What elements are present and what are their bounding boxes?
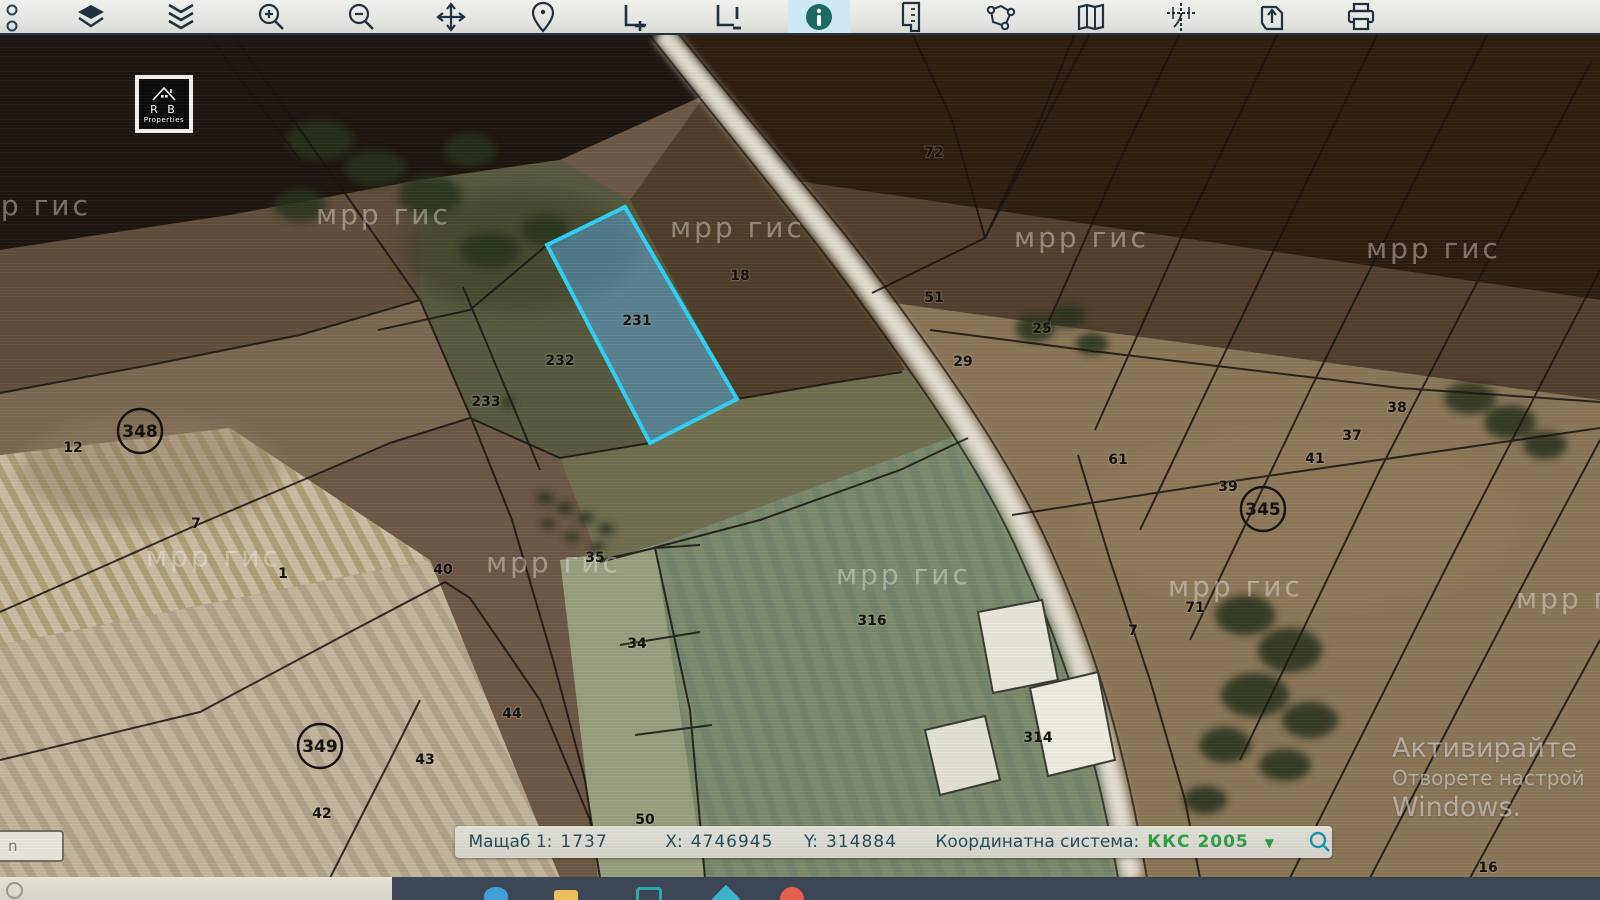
scale-value: 1737 <box>560 832 607 852</box>
activation-line1: Активирайте <box>1392 732 1585 766</box>
parcel-number-label: 61 <box>1108 452 1127 468</box>
parcel-number-label: 7 <box>1128 623 1138 639</box>
map-watermark: мрр гис <box>316 198 451 231</box>
coordinate-search-button[interactable] <box>1308 830 1332 854</box>
crs-value[interactable]: ККС 2005 <box>1147 832 1249 852</box>
parcel-number-label: 7 <box>191 516 201 532</box>
parcel-number-label: 71 <box>1185 600 1204 616</box>
activation-line2: Отворете настрой <box>1392 766 1585 791</box>
scale-readout: Мащаб 1: 1737 <box>468 832 607 852</box>
parcel-number-label: 51 <box>924 290 943 306</box>
x-coordinate-readout: X: 4746945 <box>665 832 773 852</box>
parcel-number-label: 42 <box>312 806 331 822</box>
parcel-number-label: 40 <box>433 562 453 578</box>
parcel-number-label: 316 <box>857 613 886 629</box>
y-value: 314884 <box>826 832 897 852</box>
parcel-number-label: 41 <box>1305 451 1324 467</box>
polygon-nodes-icon[interactable] <box>970 0 1032 33</box>
coordinates-icon[interactable] <box>1150 0 1212 33</box>
parcel-number-label: 35 <box>585 550 604 566</box>
location-pin-icon[interactable] <box>512 0 574 33</box>
ruler-page-icon[interactable] <box>880 0 942 33</box>
print-icon[interactable] <box>1330 0 1392 33</box>
crs-selector[interactable]: Координатна система: ККС 2005 ▼ <box>935 832 1274 852</box>
search-icon <box>1308 830 1332 854</box>
logo-initials: R B <box>150 103 178 116</box>
cortana-icon <box>6 882 23 899</box>
info-icon[interactable] <box>788 0 850 33</box>
collapse-chevrons-icon[interactable] <box>150 0 212 33</box>
map-canvas[interactable]: мрр гисмрр гисмрр гисмрр гисмрр гисмрр г… <box>0 33 1600 878</box>
chevron-down-icon[interactable]: ▼ <box>1265 836 1274 850</box>
map-watermark: мрр гис <box>1014 221 1149 254</box>
map-icon[interactable] <box>1060 0 1122 33</box>
circled-parcel-label: 349 <box>302 737 338 757</box>
parcel-number-label: 314 <box>1023 730 1052 746</box>
pan-icon[interactable] <box>420 0 482 33</box>
parcel-number-label: 38 <box>1387 400 1406 416</box>
app-window: мрр гисмрр гисмрр гисмрр гисмрр гисмрр г… <box>0 0 1600 900</box>
rb-properties-logo: R B Properties <box>135 75 193 133</box>
parcel-number-label: 72 <box>924 145 943 161</box>
y-coordinate-readout: Y: 314884 <box>804 832 897 852</box>
activation-line3: Windows. <box>1392 791 1585 825</box>
extent-alert-icon[interactable] <box>696 0 758 33</box>
parcel-number-label: 34 <box>627 636 647 652</box>
taskbar-app-blue[interactable] <box>484 887 508 900</box>
house-icon <box>151 85 177 101</box>
x-label: X: <box>665 832 682 852</box>
circled-parcel-label: 345 <box>1245 500 1281 520</box>
parcel-number-label: 25 <box>1032 321 1051 337</box>
windows-taskbar[interactable] <box>0 877 1600 900</box>
overflow-dots-icon[interactable] <box>0 0 30 33</box>
taskbar-app-folder[interactable] <box>554 890 578 900</box>
y-label: Y: <box>804 832 818 852</box>
parcel-number-label: 232 <box>545 353 574 369</box>
zoom-out-icon[interactable] <box>330 0 392 33</box>
parcel-number-label: 12 <box>63 440 82 456</box>
windows-activation-watermark: Активирайте Отворете настрой Windows. <box>1392 732 1585 825</box>
taskbar-app-red[interactable] <box>780 887 804 900</box>
circled-parcel-label: 348 <box>122 422 158 442</box>
taskbar-app-teal[interactable] <box>636 887 662 900</box>
parcel-number-label: 233 <box>471 394 500 410</box>
map-toolbar <box>0 0 1600 35</box>
parcel-number-label: 231 <box>622 313 651 329</box>
taskbar-app-diamond[interactable] <box>712 885 740 900</box>
map-watermark: мрр гис <box>836 558 971 591</box>
extent-add-icon[interactable] <box>604 0 666 33</box>
scale-label: Мащаб 1: <box>468 832 552 852</box>
taskbar-search-box[interactable] <box>0 877 392 900</box>
tooltip-text: n <box>8 837 18 855</box>
parcel-number-label: 16 <box>1478 860 1497 876</box>
map-watermark: мрр гис <box>1168 570 1303 603</box>
map-watermark: мрр гис <box>0 189 91 222</box>
parcel-number-label: 1 <box>278 566 288 582</box>
layers-stack-icon[interactable] <box>60 0 122 33</box>
parcel-number-label: 37 <box>1342 428 1361 444</box>
zoom-in-icon[interactable] <box>240 0 302 33</box>
terrain-patches <box>0 33 1600 878</box>
map-status-bar: Мащаб 1: 1737 X: 4746945 Y: 314884 Коорд… <box>455 826 1332 858</box>
crs-label: Координатна система: <box>935 832 1139 852</box>
map-watermark: мрр гис <box>1516 582 1600 615</box>
parcel-number-label: 39 <box>1218 479 1237 495</box>
parcel-number-label: 29 <box>953 354 972 370</box>
map-watermark: мрр гис <box>670 211 805 244</box>
map-watermark: мрр гис <box>1366 232 1501 265</box>
parcel-number-label: 18 <box>730 268 749 284</box>
map-watermark: мрр гис <box>146 540 281 573</box>
export-icon[interactable] <box>1240 0 1302 33</box>
x-value: 4746945 <box>691 832 774 852</box>
parcel-number-label: 44 <box>502 706 522 722</box>
cut-off-tooltip: n <box>0 830 64 862</box>
parcel-number-label: 43 <box>415 752 434 768</box>
logo-word: Properties <box>144 116 184 124</box>
